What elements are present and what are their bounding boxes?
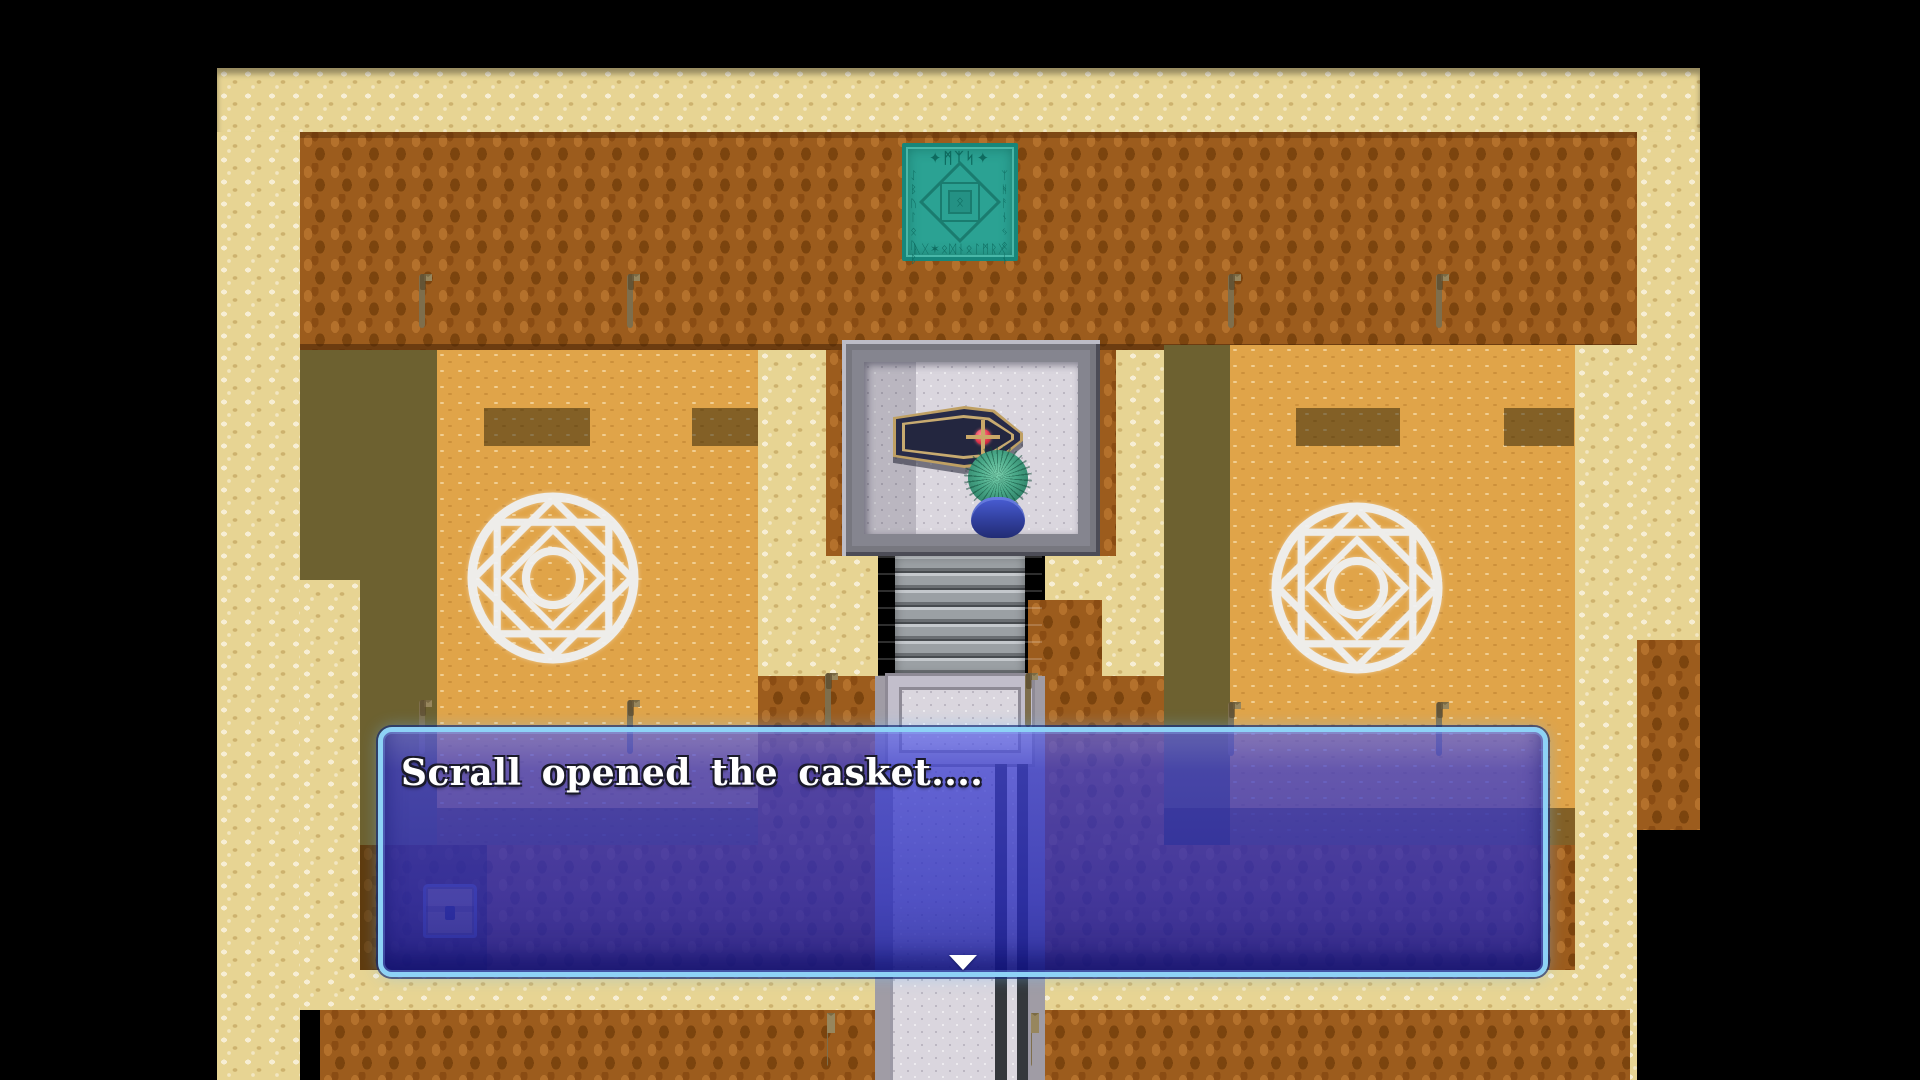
mid-right-passage-low [1045,556,1102,600]
mid-left-passage [758,350,826,676]
wall-sliver-right [1100,350,1116,556]
south-wall-left [320,1010,880,1080]
magic-circle-left [463,488,643,668]
right-pillar-shadow-1 [1296,408,1400,446]
rune-seal-tile: ✦ᛗᛉᛋ✦ ᛇᛒᚢᛚᛟᚢᛒ ᛉᚻᚨᚾᛃᛟᚾ ᚣᚷ✶ᛟᛞᚾᛟᛚᛗᚱᚷ ᛟ [902,143,1018,261]
rune-center-glyph: ᛟ [948,190,972,214]
game-viewport[interactable]: ✦ᛗᛉᛋ✦ ᛇᛒᚢᛚᛟᚢᛒ ᛉᚻᚨᚾᛃᛟᚾ ᚣᚷ✶ᛟᛞᚾᛟᛚᛗᚱᚷ ᛟ [0,0,1920,1080]
mid-left-passage-low [826,556,878,676]
wall-corner-southeast [1637,640,1700,830]
stairs-rail-left [878,556,895,676]
rune-right-column: ᛉᚻᚨᚾᛃᛟᚾ [1000,171,1011,239]
stairs [895,556,1025,676]
rune-left-column: ᛇᛒᚢᛚᛟᚢᛒ [909,171,920,239]
pillar [1031,1013,1093,1080]
pillar [632,274,692,446]
stairs-rail-right [1025,556,1042,676]
magic-circle-right [1267,498,1447,678]
wall-rim-top [217,68,1700,132]
shadow-west-upper [300,350,437,580]
pillar [1441,274,1501,446]
continue-arrow-icon[interactable] [949,955,977,970]
right-pillar-shadow-2 [1504,408,1574,446]
pillar [1233,274,1293,446]
dialogue-box[interactable]: Scrall opened the casket.... [378,727,1548,977]
south-wall-right [1040,1010,1630,1080]
left-pillar-shadow-2 [692,408,758,446]
casket-gem [975,429,991,445]
left-pillar-shadow-1 [484,408,590,446]
pillar [424,274,484,446]
west-passage [300,580,360,1010]
rune-bottom-row: ᚣᚷ✶ᛟᛞᚾᛟᛚᛗᚱᚷ [906,242,1014,256]
wall-rim-right [1637,132,1700,640]
wall-sliver-left [826,350,842,556]
player-character[interactable] [971,497,1025,538]
dialogue-text: Scrall opened the casket.... [401,752,983,794]
pillar [827,1013,889,1080]
wall-rim-left [217,132,300,1080]
